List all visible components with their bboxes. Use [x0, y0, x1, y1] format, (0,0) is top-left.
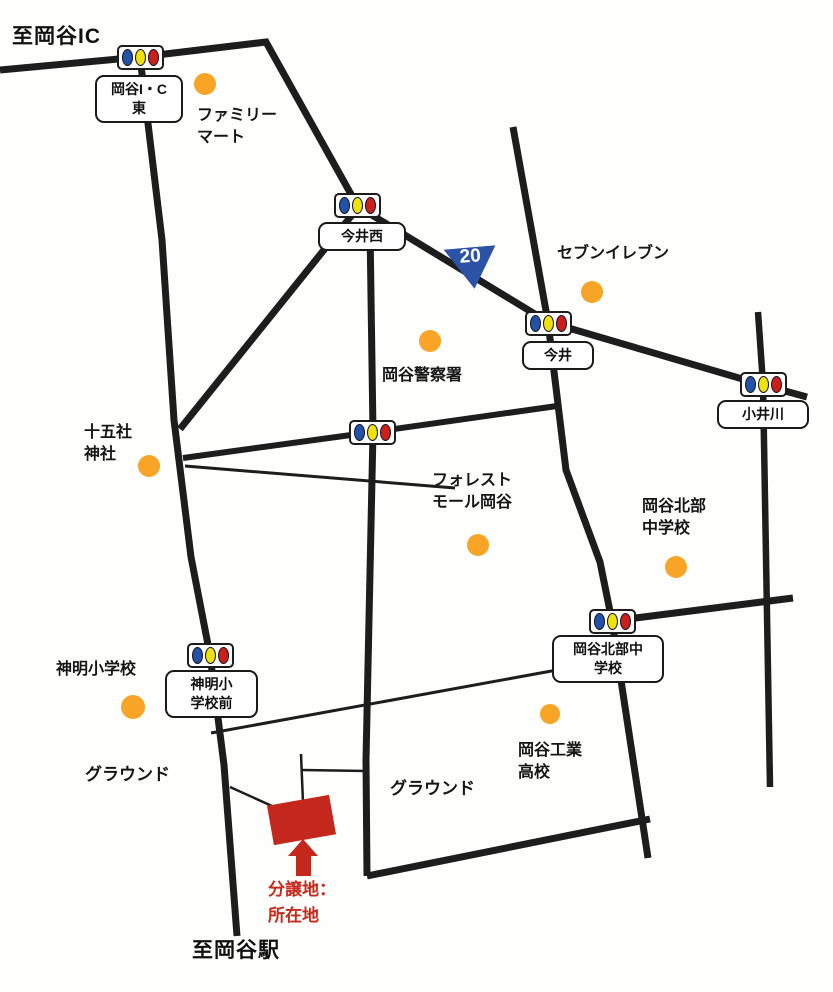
traffic-signal-okaya-ic-east-icon: [117, 45, 164, 70]
traffic-signal-hokubu-icon: [589, 609, 636, 634]
signal-lamp-blue: [122, 49, 133, 66]
signal-lamp-red: [771, 376, 782, 393]
path-school-front: [211, 670, 557, 733]
signal-label-okaya-ic-east: 岡谷I・C 東: [95, 75, 183, 123]
signal-lamp-yellow: [135, 49, 146, 66]
signal-lamp-blue: [745, 376, 756, 393]
road-center-vertical: [366, 228, 373, 876]
signal-label-hokubu-junior-high: 岡谷北部中 学校: [552, 635, 664, 683]
signal-label-koikawa: 小井川: [717, 400, 809, 429]
traffic-signal-shinmei-icon: [187, 643, 234, 668]
signal-lamp-red: [218, 647, 229, 664]
signal-lamp-yellow: [205, 647, 216, 664]
ground-label-west: グラウンド: [85, 760, 170, 785]
site-arrow-stem: [296, 855, 311, 876]
path-site-connector: [230, 787, 272, 806]
route-20-number: 20: [459, 245, 482, 267]
road-ic-top: [0, 42, 357, 205]
path-site-horizontal: [302, 770, 367, 771]
signal-label-imai-nishi: 今井西: [318, 222, 406, 251]
signal-lamp-blue: [354, 424, 365, 441]
landmark-label-jugosha-shrine: 十五社 神社: [84, 422, 132, 467]
path-mid-field: [185, 466, 455, 488]
landmark-dot-seven-eleven: [581, 281, 603, 303]
landmark-dot-shinmei-elementary: [121, 695, 145, 719]
traffic-signal-koikawa-icon: [740, 372, 787, 397]
signal-lamp-blue: [530, 315, 541, 332]
landmark-label-police: 岡谷警察署: [382, 365, 462, 387]
landmark-dot-jugosha-shrine: [138, 455, 160, 477]
signal-lamp-yellow: [352, 197, 363, 214]
landmark-label-hokubu-junior-high: 岡谷北部 中学校: [642, 496, 706, 541]
path-site-tick: [301, 754, 303, 803]
signal-lamp-red: [620, 613, 631, 630]
road-network: [0, 0, 833, 992]
map-canvas: 至岡谷IC 至岡谷駅 20 岡谷I・C 東 今井西 今井 小井川 岡谷北部中 学…: [0, 0, 833, 992]
landmark-label-shinmei-elementary: 神明小学校: [56, 659, 136, 681]
signal-lamp-red: [380, 424, 391, 441]
traffic-signal-center-icon: [349, 420, 396, 445]
destination-label-okaya-station: 至岡谷駅: [192, 934, 280, 964]
landmark-dot-forest-mall: [467, 534, 489, 556]
signal-label-shinmei-elementary-front: 神明小 学校前: [165, 670, 258, 718]
landmark-label-seven-eleven: セブンイレブン: [557, 243, 669, 265]
landmark-label-forest-mall: フォレスト モール岡谷: [432, 470, 512, 515]
signal-lamp-yellow: [543, 315, 554, 332]
site-arrow-head: [288, 839, 318, 856]
ground-label-east: グラウンド: [390, 774, 475, 799]
signal-lamp-yellow: [607, 613, 618, 630]
destination-label-okaya-ic: 至岡谷IC: [12, 20, 101, 50]
signal-lamp-yellow: [367, 424, 378, 441]
landmark-dot-kogyo-highschool: [540, 704, 560, 724]
landmark-dot-familymart: [194, 73, 216, 95]
signal-lamp-yellow: [758, 376, 769, 393]
road-west-main: [140, 57, 237, 936]
traffic-signal-imai-icon: [525, 311, 572, 336]
signal-lamp-red: [365, 197, 376, 214]
signal-lamp-red: [556, 315, 567, 332]
landmark-label-familymart: ファミリー マート: [197, 105, 277, 150]
signal-label-imai: 今井: [522, 341, 594, 370]
signal-lamp-red: [148, 49, 159, 66]
traffic-signal-imai-nishi-icon: [334, 193, 381, 218]
signal-lamp-blue: [192, 647, 203, 664]
landmark-label-kogyo-highschool: 岡谷工業 高校: [518, 740, 582, 785]
signal-lamp-blue: [594, 613, 605, 630]
landmark-dot-police: [419, 330, 441, 352]
signal-lamp-blue: [339, 197, 350, 214]
landmark-dot-hokubu-junior-high: [665, 556, 687, 578]
road-south: [367, 819, 650, 876]
site-caption: 分譲地： 所在地: [268, 877, 336, 928]
